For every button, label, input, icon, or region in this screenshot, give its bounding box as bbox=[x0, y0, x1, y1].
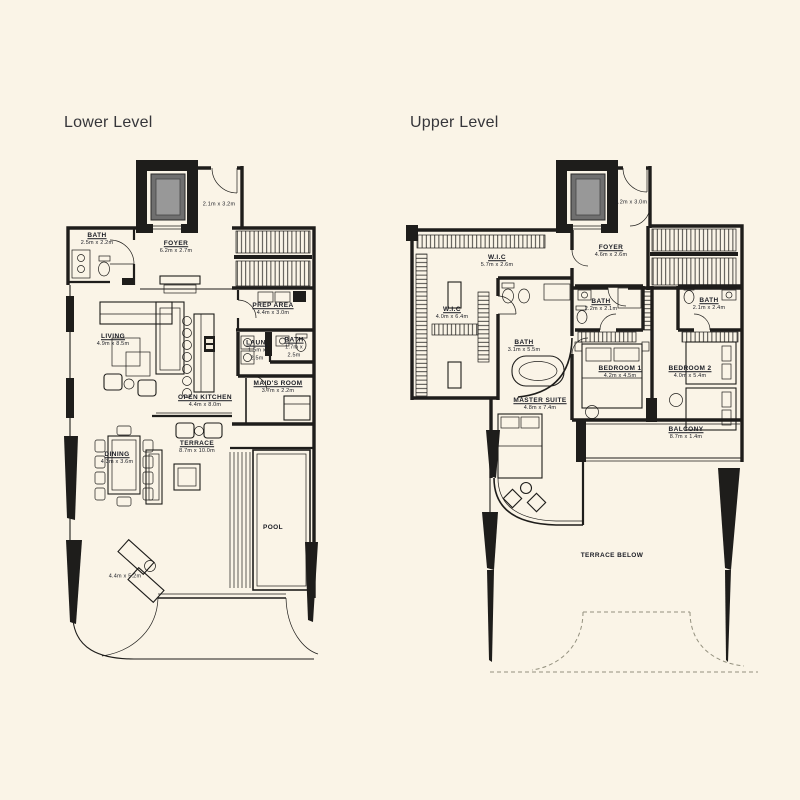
balcony-rail bbox=[583, 458, 742, 461]
room-name: W.I.C bbox=[481, 254, 513, 262]
room-dim: 3.7m x 2.2m bbox=[254, 389, 303, 396]
room-dim: 2.1m x 2.4m bbox=[693, 306, 725, 313]
room-dim: 4.4m x 5.2m bbox=[109, 573, 141, 580]
lower-level-title: Lower Level bbox=[64, 114, 152, 132]
upper-level-title: Upper Level bbox=[410, 114, 498, 132]
room-label-lower-bath2: BATH 1.7m x 2.5m bbox=[281, 337, 307, 360]
room-name: LAUN. bbox=[244, 340, 270, 348]
room-label-bath2: BATH 2.1m x 2.4m bbox=[693, 297, 725, 313]
room-label-lower-foyer: FOYER 6.2m x 2.7m bbox=[160, 240, 192, 256]
room-dim: 8.7m x 10.0m bbox=[179, 449, 215, 456]
room-dim: 1.5m x 2.5m bbox=[244, 348, 270, 362]
room-label-master-bath: BATH 3.1m x 5.5m bbox=[508, 339, 540, 355]
room-name: FOYER bbox=[595, 244, 627, 252]
upper-stairs-icon bbox=[650, 229, 738, 285]
lower-stairs-icon bbox=[234, 231, 312, 286]
room-label-lower-bath: BATH 2.5m x 2.2m bbox=[81, 232, 113, 248]
dim-label-lower-lift: 2.1m x 3.2m bbox=[203, 201, 235, 208]
room-label-bedroom1: BEDROOM 1 4.2m x 4.5m bbox=[599, 365, 642, 381]
room-dim: 1.7m x 2.5m bbox=[281, 345, 307, 359]
room-label-prep-area: PREP AREA 4.4m x 3.0m bbox=[252, 302, 293, 318]
room-dim: 6.2m x 2.7m bbox=[160, 249, 192, 256]
room-dim: 4.4m x 3.0m bbox=[252, 311, 293, 318]
room-dim: 2.2m x 2.1m bbox=[585, 307, 617, 314]
room-label-laundry: LAUN. 1.5m x 2.5m bbox=[244, 340, 270, 363]
lower-bath-fixtures bbox=[72, 250, 110, 278]
room-name: OPEN KITCHEN bbox=[178, 394, 232, 402]
upper-entry-walls bbox=[618, 166, 650, 228]
room-label-bedroom2: BEDROOM 2 4.0m x 5.4m bbox=[669, 365, 712, 381]
room-name: DINING bbox=[101, 451, 133, 459]
room-name: BALCONY bbox=[669, 426, 704, 434]
upper-elevator-icon bbox=[556, 160, 618, 233]
room-label-wic2: W.I.C 4.0m x 6.4m bbox=[436, 306, 468, 322]
room-name: LIVING bbox=[97, 333, 129, 341]
room-name: BATH bbox=[693, 297, 725, 305]
room-label-living: LIVING 4.9m x 8.5m bbox=[97, 333, 129, 349]
room-dim: 4.6m x 2.6m bbox=[595, 253, 627, 260]
bedroom2-beds-icon bbox=[670, 342, 737, 430]
room-dim: 2.5m x 2.2m bbox=[81, 241, 113, 248]
room-name: W.I.C bbox=[436, 306, 468, 314]
room-dim: 2.1m x 3.2m bbox=[203, 201, 235, 208]
room-dim: 4.0m x 5.4m bbox=[669, 374, 712, 381]
room-label-terrace-below: TERRACE BELOW bbox=[581, 552, 644, 560]
room-label-wic1: W.I.C 5.7m x 2.6m bbox=[481, 254, 513, 270]
room-name: MASTER SUITE bbox=[513, 397, 566, 405]
room-dim: 4.0m x 6.4m bbox=[436, 315, 468, 322]
room-label-balcony: BALCONY 8.7m x 1.4m bbox=[669, 426, 704, 442]
room-name: FOYER bbox=[160, 240, 192, 248]
room-dim: 5.7m x 2.6m bbox=[481, 263, 513, 270]
room-dim: 4.2m x 4.5m bbox=[599, 374, 642, 381]
room-dim: 4.8m x 7.4m bbox=[513, 406, 566, 413]
room-dim: 8.7m x 1.4m bbox=[669, 435, 704, 442]
lower-terrace-edge bbox=[73, 594, 318, 659]
room-name: POOL bbox=[263, 524, 283, 532]
floorplan-canvas: Lower Level Upper Level BATH 2.5m x 2.2m… bbox=[0, 0, 800, 800]
room-name: TERRACE BELOW bbox=[581, 552, 644, 560]
room-name: BEDROOM 1 bbox=[599, 365, 642, 373]
pool-icon bbox=[230, 448, 314, 590]
lower-living-icons bbox=[100, 302, 184, 396]
room-name: MAID'S ROOM bbox=[254, 380, 303, 388]
room-name: BATH bbox=[508, 339, 540, 347]
master-suite-icons bbox=[494, 414, 586, 525]
room-dim: 4.3m x 3.6m bbox=[101, 460, 133, 467]
room-dim: 4.4m x 8.0m bbox=[178, 403, 232, 410]
dim-label-deck: 4.4m x 5.2m bbox=[109, 573, 141, 580]
room-label-upper-foyer: FOYER 4.6m x 2.6m bbox=[595, 244, 627, 260]
foyer-console-icon bbox=[160, 276, 200, 284]
room-dim: 3.1m x 5.5m bbox=[508, 348, 540, 355]
room-name: PREP AREA bbox=[252, 302, 293, 310]
room-label-master-suite: MASTER SUITE 4.8m x 7.4m bbox=[513, 397, 566, 413]
room-label-dining: DINING 4.3m x 3.6m bbox=[101, 451, 133, 467]
dim-label-upper-lift: 2.2m x 3.0m bbox=[615, 199, 647, 206]
room-label-pool: POOL bbox=[263, 524, 283, 532]
room-label-open-kitchen: OPEN KITCHEN 4.4m x 8.0m bbox=[178, 394, 232, 410]
room-name: BATH bbox=[81, 232, 113, 240]
room-name: BATH bbox=[585, 298, 617, 306]
lower-elevator-icon bbox=[136, 160, 198, 233]
lower-walls bbox=[64, 228, 318, 624]
room-label-maids-room: MAID'S ROOM 3.7m x 2.2m bbox=[254, 380, 303, 396]
room-name: BATH bbox=[281, 337, 307, 345]
room-name: TERRACE bbox=[179, 440, 215, 448]
room-label-terrace: TERRACE 8.7m x 10.0m bbox=[179, 440, 215, 456]
room-dim: 4.9m x 8.5m bbox=[97, 342, 129, 349]
room-dim: 2.2m x 3.0m bbox=[615, 199, 647, 206]
upper-plan-linework bbox=[406, 160, 758, 672]
master-bath-icons bbox=[502, 283, 570, 386]
room-label-bath1: BATH 2.2m x 2.1m bbox=[585, 298, 617, 314]
room-name: BEDROOM 2 bbox=[669, 365, 712, 373]
terrace-below-outline bbox=[490, 612, 758, 672]
lower-entry-walls bbox=[198, 166, 242, 228]
